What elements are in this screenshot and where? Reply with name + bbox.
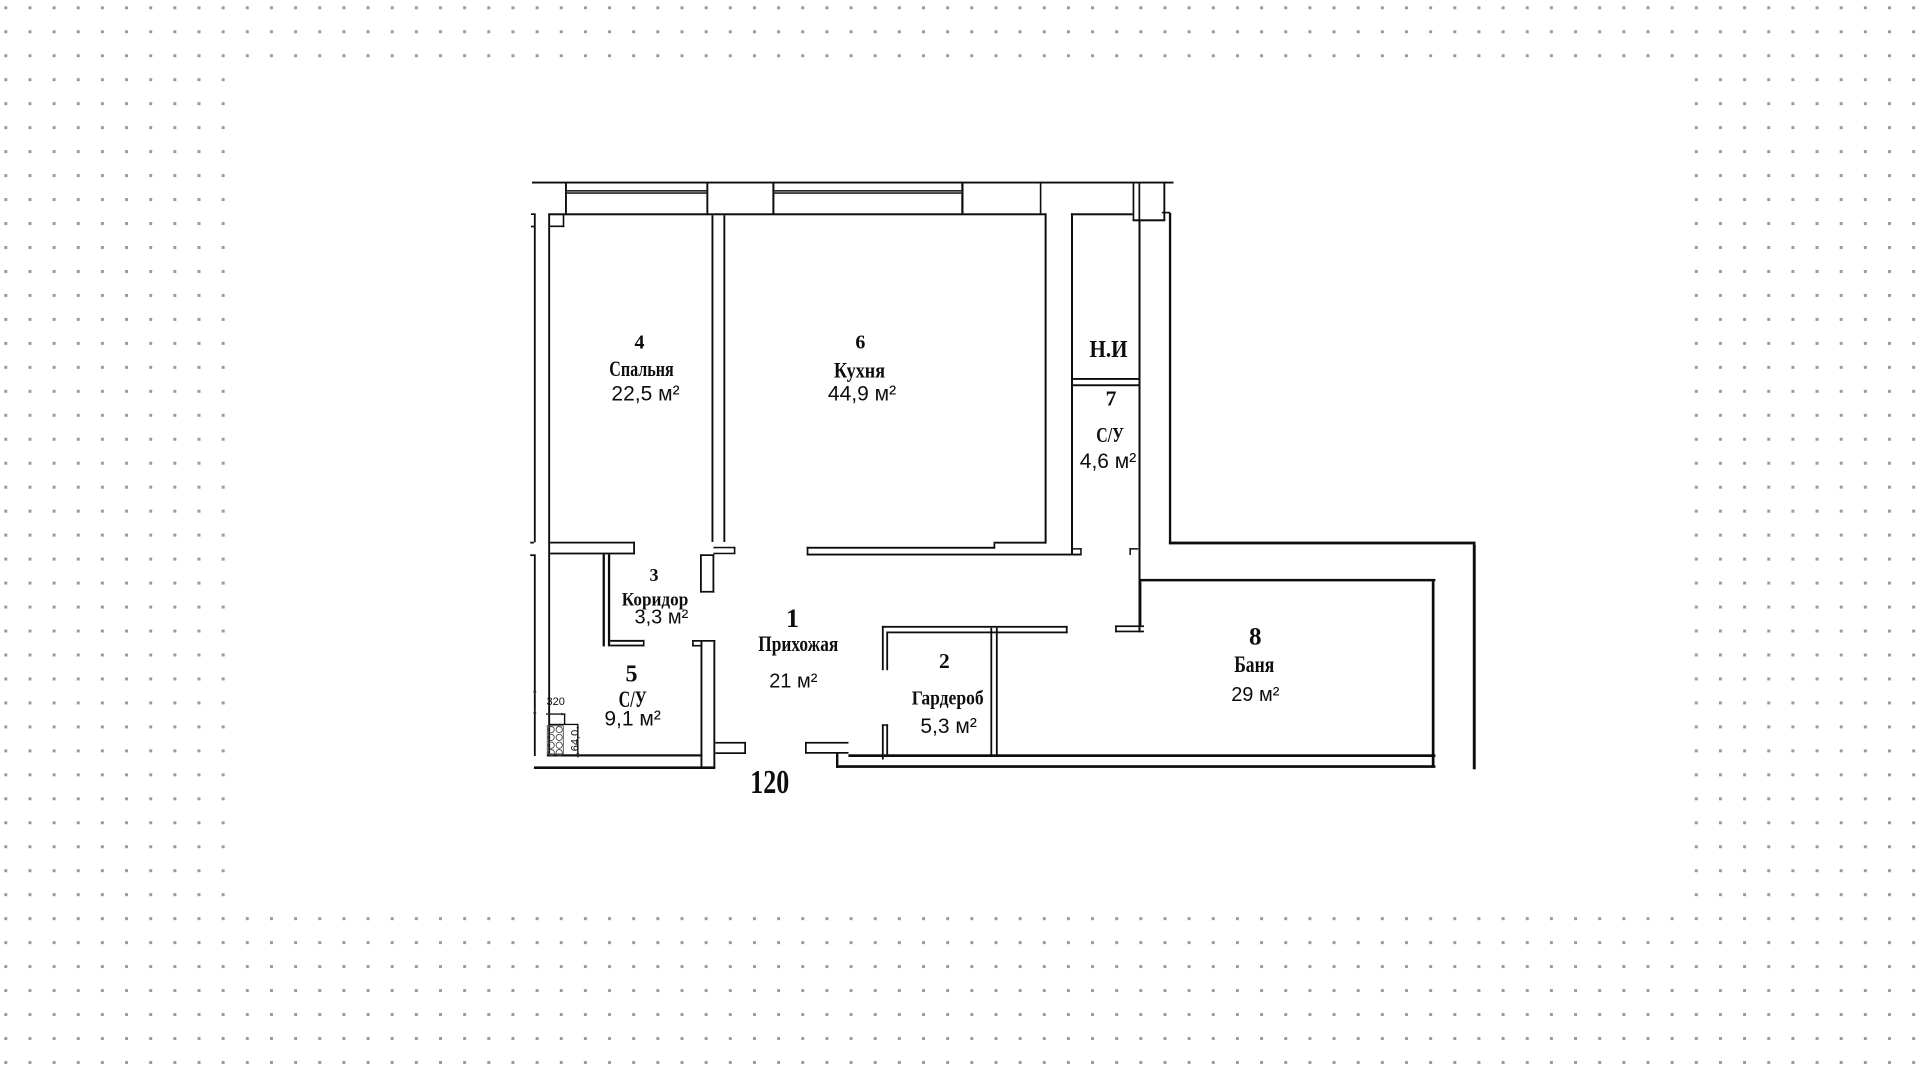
- svg-text:9,1 м²: 9,1 м²: [604, 708, 660, 731]
- svg-text:3,3 м²: 3,3 м²: [635, 607, 689, 629]
- svg-text:29 м²: 29 м²: [1231, 684, 1280, 706]
- svg-text:120: 120: [750, 764, 789, 801]
- svg-text:320: 320: [547, 696, 565, 708]
- svg-text:22,5 м²: 22,5 м²: [611, 383, 679, 406]
- svg-text:Н.И: Н.И: [1090, 337, 1128, 363]
- svg-text:Гардероб: Гардероб: [912, 689, 984, 710]
- svg-text:4,6 м²: 4,6 м²: [1080, 450, 1136, 473]
- svg-text:Баня: Баня: [1234, 652, 1274, 677]
- svg-text:21 м²: 21 м²: [769, 671, 818, 693]
- svg-text:7: 7: [1106, 387, 1117, 411]
- svg-text:64,0: 64,0: [570, 730, 582, 751]
- svg-text:Кухня: Кухня: [834, 358, 885, 383]
- svg-text:1: 1: [786, 604, 799, 633]
- svg-text:С/У: С/У: [1096, 423, 1124, 447]
- svg-text:Спальня: Спальня: [609, 356, 674, 381]
- svg-text:2: 2: [939, 649, 950, 673]
- svg-text:Прихожая: Прихожая: [758, 631, 838, 656]
- svg-text:5: 5: [626, 662, 638, 688]
- svg-text:44,9 м²: 44,9 м²: [828, 383, 896, 406]
- svg-text:5,3 м²: 5,3 м²: [920, 715, 976, 738]
- svg-text:6: 6: [855, 332, 865, 354]
- svg-text:8: 8: [1249, 624, 1262, 651]
- svg-text:3: 3: [650, 565, 659, 585]
- svg-text:4: 4: [635, 332, 645, 354]
